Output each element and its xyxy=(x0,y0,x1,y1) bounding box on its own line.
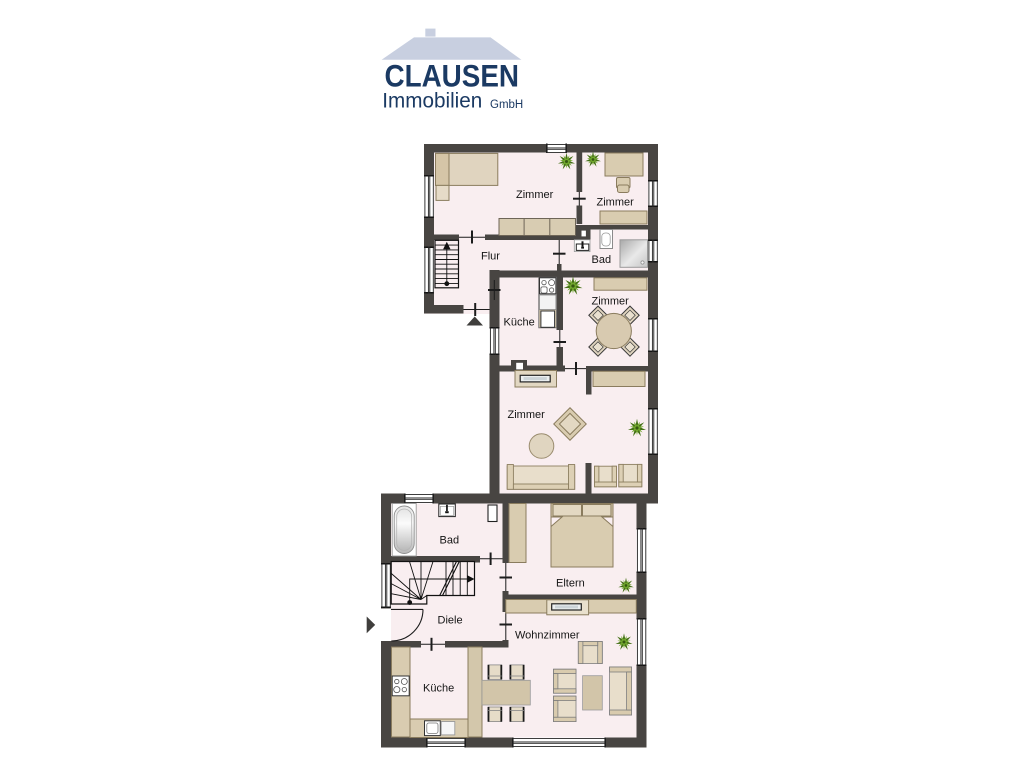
svg-text:Zimmer: Zimmer xyxy=(516,189,554,201)
svg-text:Zimmer: Zimmer xyxy=(592,295,630,307)
svg-text:Immobilien: Immobilien xyxy=(382,89,482,112)
svg-text:CLAUSEN: CLAUSEN xyxy=(385,59,520,94)
svg-text:Zimmer: Zimmer xyxy=(597,197,635,209)
svg-text:Zimmer: Zimmer xyxy=(508,409,546,421)
svg-text:Küche: Küche xyxy=(504,317,535,329)
svg-text:Bad: Bad xyxy=(440,535,460,547)
svg-text:Eltern: Eltern xyxy=(556,577,585,589)
svg-text:GmbH: GmbH xyxy=(490,99,523,111)
svg-text:Bad: Bad xyxy=(592,254,612,266)
svg-text:Flur: Flur xyxy=(481,251,500,263)
svg-text:Diele: Diele xyxy=(438,615,463,627)
svg-text:Küche: Küche xyxy=(423,683,454,695)
svg-text:Wohnzimmer: Wohnzimmer xyxy=(515,630,580,642)
